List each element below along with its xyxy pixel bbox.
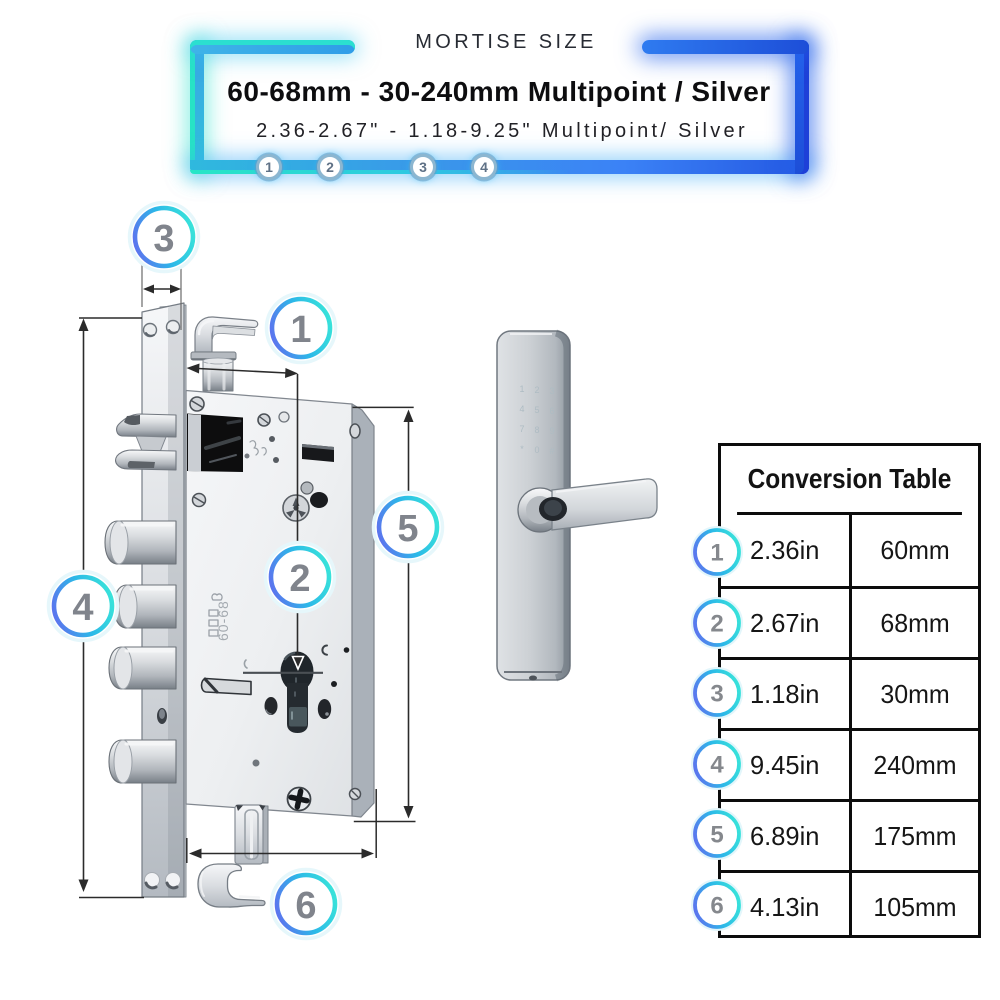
svg-text:6: 6 bbox=[295, 885, 316, 927]
svg-text:5: 5 bbox=[534, 405, 539, 415]
svg-text:6: 6 bbox=[710, 893, 723, 920]
svg-text:0: 0 bbox=[534, 445, 539, 455]
svg-text:8: 8 bbox=[534, 425, 539, 435]
svg-text:5: 5 bbox=[710, 822, 723, 849]
svg-text:1: 1 bbox=[290, 309, 311, 351]
svg-text:3: 3 bbox=[153, 218, 174, 260]
svg-text:4: 4 bbox=[519, 404, 524, 414]
svg-text:7: 7 bbox=[519, 424, 524, 434]
svg-text:2: 2 bbox=[289, 558, 310, 600]
svg-text:4: 4 bbox=[72, 587, 93, 629]
svg-text:#: # bbox=[549, 446, 554, 456]
svg-text:9: 9 bbox=[549, 426, 554, 436]
svg-text:2: 2 bbox=[534, 385, 539, 395]
svg-text:3: 3 bbox=[549, 386, 554, 396]
svg-text:*: * bbox=[520, 444, 524, 454]
svg-text:5: 5 bbox=[397, 508, 418, 550]
svg-text:1: 1 bbox=[519, 384, 524, 394]
svg-text:2: 2 bbox=[710, 611, 723, 638]
svg-text:6: 6 bbox=[549, 406, 554, 416]
svg-text:1: 1 bbox=[710, 540, 723, 567]
svg-text:3: 3 bbox=[710, 681, 723, 708]
svg-text:4: 4 bbox=[710, 752, 724, 779]
